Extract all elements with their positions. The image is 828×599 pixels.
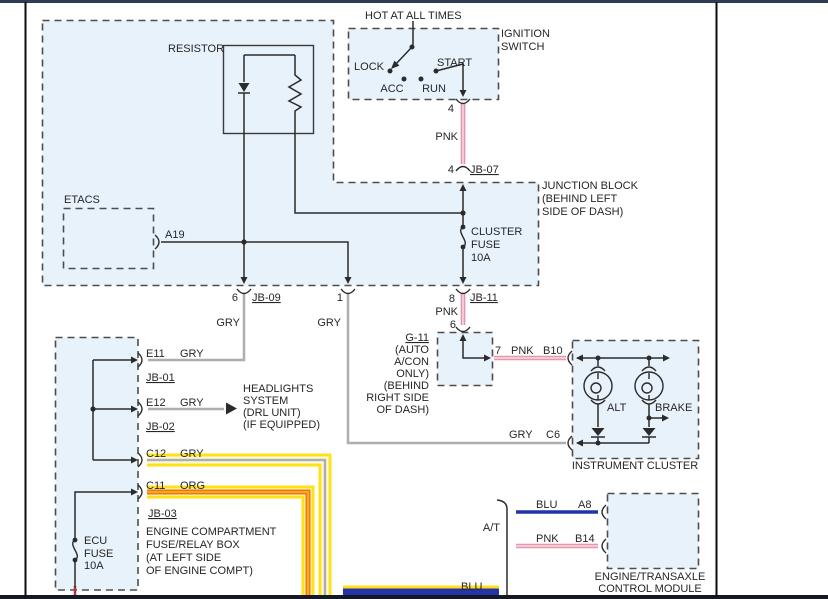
connector-icon-jb-1 [341,289,355,294]
connector-icon-c6 [568,436,572,450]
wire-label-blu: BLU [536,499,557,511]
switch-pos-acc: ACC [380,83,403,95]
bottom-frame-bar [0,595,828,599]
engine-module-label2: CONTROL MODULE [598,583,702,595]
switch-pos-run: RUN [422,83,446,95]
instrument-cluster-label: INSTRUMENT CLUSTER [572,460,698,472]
wiring-diagram: HOT AT ALL TIMES IGNITION SWITCH LOCK AC… [0,0,828,599]
connector-link-jb03[interactable]: JB-03 [148,508,177,520]
ecu-fuse-label: ECU [84,535,107,547]
wire-label-gry: GRY [317,317,341,329]
right-page-border [716,2,718,597]
connector-link-jb01[interactable]: JB-01 [146,372,175,384]
g11-note5: RIGHT SIDE [366,392,429,404]
connector-icon-g11-6 [456,327,470,332]
left-page-border [25,2,27,597]
at-bracket [497,500,507,599]
g11-note6: OF DASH) [376,404,429,416]
pin-6b: 6 [450,319,456,331]
pin-e11: E11 [146,348,165,360]
engine-module-label: ENGINE/TRANSAXLE [595,571,706,583]
wire-label-gry: GRY [180,397,204,409]
etacs-label: ETACS [64,194,100,206]
hot-feed-label: HOT AT ALL TIMES [365,10,462,22]
wire-label-blu-bottom: BLU [461,581,482,593]
cluster-fuse-rating: 10A [471,252,491,264]
connector-link-g11[interactable]: G-11 [405,332,429,344]
wire-label-pnk: PNK [435,131,458,143]
connector-link-jb07[interactable]: JB-07 [470,164,499,176]
pin-a8: A8 [578,499,591,511]
pin-1: 1 [337,292,343,304]
headlights-label: HEADLIGHTS [243,383,313,395]
wire-label-gry: GRY [180,348,204,360]
switch-pos-start: START [437,57,472,69]
pin-c6: C6 [546,429,560,441]
wire-label-pnk: PNK [435,306,458,318]
wire-label-gry: GRY [216,317,240,329]
junction-block-label: JUNCTION BLOCK [542,180,639,192]
pin-e12: E12 [146,397,166,409]
ignition-switch-label2: SWITCH [501,41,544,53]
pin-7: 7 [495,345,501,357]
pin-b14: B14 [575,533,595,545]
fuse-box-title4: OF ENGINE COMPT) [146,565,253,577]
wire-label-gry: GRY [180,448,204,460]
connector-icon-a8 [602,505,606,519]
blu-wires [343,512,598,592]
engine-module-box [608,494,699,569]
switch-pos-lock: LOCK [354,61,385,73]
pin-b10: B10 [543,345,563,357]
connector-link-jb02[interactable]: JB-02 [146,421,175,433]
brake-lamp-label: BRAKE [655,402,692,414]
g11-note3: ONLY) [396,368,429,380]
connector-icon-b14 [602,539,606,553]
pin-6: 6 [232,292,238,304]
connector-link-jb11[interactable]: JB-11 [470,292,498,304]
wire-label-pnk: PNK [511,345,534,357]
wire-label-pnk: PNK [536,533,559,545]
alt-lamp-label: ALT [607,402,627,414]
connector-icon-b10 [568,351,572,365]
pin-c11: C11 [146,480,165,492]
headlights-label2: SYSTEM [243,395,288,407]
cluster-fuse-label2: FUSE [471,239,500,251]
wire-label-gry: GRY [509,429,533,441]
pin-4-top: 4 [448,103,454,115]
top-frame-bar [0,0,828,3]
pin-8: 8 [449,293,455,305]
headlights-label3: (DRL UNIT) [243,407,301,419]
wire-label-org: ORG [180,480,205,492]
fuse-box-title3: (AT LEFT SIDE [146,552,221,564]
pin-4-bottom: 4 [448,164,454,176]
g11-note2: A/CON [394,356,429,368]
pin-a19: A19 [165,229,185,241]
g11-note4: (BEHIND [384,380,429,392]
connector-icon-jb07 [456,167,470,172]
connector-link-jb09[interactable]: JB-09 [252,292,281,304]
headlights-label4: (IF EQUIPPED) [243,419,320,431]
connector-icon-jb09 [237,289,251,294]
pin-c12: C12 [146,448,166,460]
ecu-fuse-label2: FUSE [84,548,113,560]
fuse-box-title2: FUSE/RELAY BOX [146,539,240,551]
junction-block-label2: (BEHIND LEFT [542,193,617,205]
cluster-fuse-label: CLUSTER [471,226,522,238]
fuse-box-title: ENGINE COMPARTMENT [146,526,277,538]
g11-note1: (AUTO [395,344,429,356]
connector-icon-jb11 [456,289,470,294]
wiring-diagram-page: HOT AT ALL TIMES IGNITION SWITCH LOCK AC… [0,0,828,599]
junction-block-label3: SIDE OF DASH) [542,206,623,218]
ignition-switch-label: IGNITION [501,28,550,40]
ecu-fuse-rating: 10A [84,560,104,572]
headlights-arrow-icon [226,403,237,415]
at-label: A/T [483,522,500,534]
resistor-label: RESISTOR [168,43,224,55]
